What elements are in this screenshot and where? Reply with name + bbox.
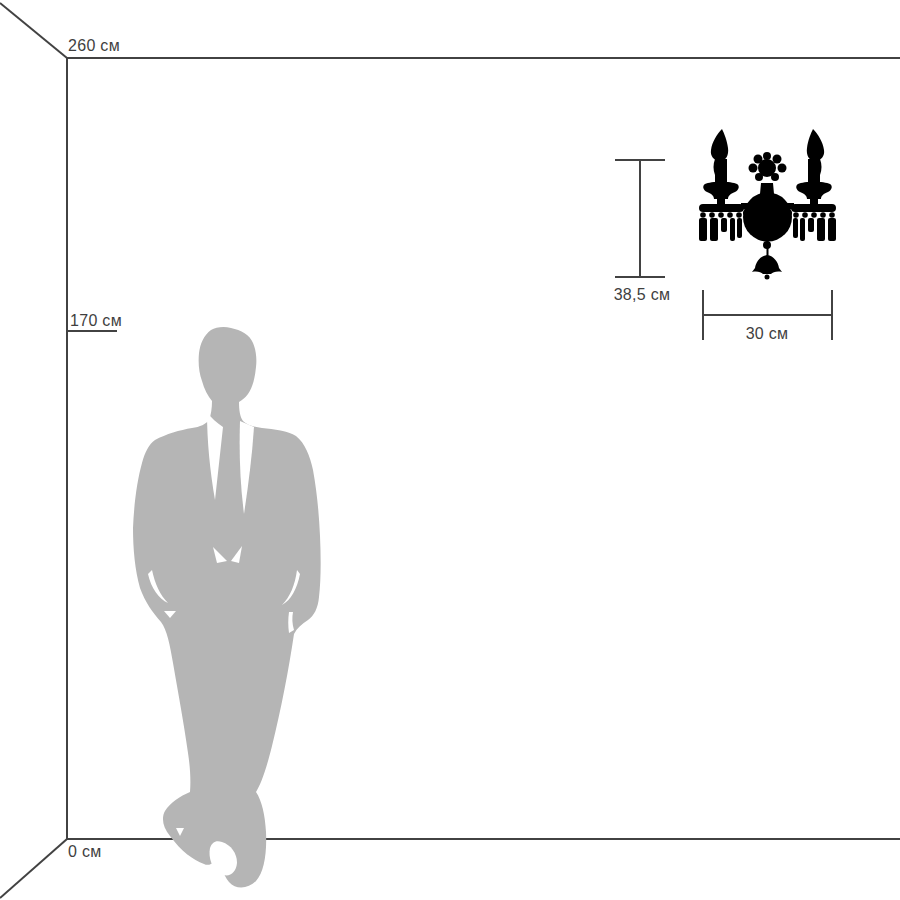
height-dimension	[615, 160, 665, 277]
floor-label: 0 см	[68, 843, 102, 861]
sconce-candle-arm-right	[786, 129, 836, 241]
candle-flame-icon	[711, 129, 728, 161]
crystal-prism	[737, 218, 742, 238]
height-dimension-lines	[615, 160, 665, 277]
person-silhouette	[133, 327, 321, 888]
pendant-bell	[752, 255, 782, 274]
crystal-bead	[709, 212, 715, 218]
person-body	[133, 327, 321, 888]
rosette-bead	[778, 164, 787, 173]
ceiling-corner-diagonal	[0, 3, 67, 58]
person-height-label: 170 см	[70, 312, 122, 330]
sconce-candle-arm-left	[699, 129, 749, 241]
rosette-bead	[771, 173, 779, 181]
crystal-bead	[727, 212, 733, 218]
crystal-bead	[736, 212, 742, 218]
candle-body	[714, 159, 728, 183]
rosette-bead	[749, 164, 758, 173]
crystal-prism	[699, 218, 707, 241]
bell-clapper	[765, 275, 770, 280]
diagram-canvas	[0, 0, 900, 900]
crystal-prism	[710, 218, 718, 241]
crystal-bead	[718, 212, 724, 218]
scale-diagram: 260 см 170 см 0 см 38,5 см 30 см	[0, 0, 900, 900]
rosette-bead	[773, 155, 782, 164]
crystal-bead	[700, 212, 706, 218]
ceiling-height-label: 260 см	[68, 37, 120, 55]
sconce-backplate-disc	[743, 193, 792, 242]
sconce-center	[743, 152, 792, 280]
crystal-prism	[730, 218, 735, 241]
sconce-neck	[760, 183, 774, 194]
pendant-bead	[763, 241, 771, 249]
crystal-arm-bar	[699, 204, 744, 212]
floor-corner-diagonal	[0, 839, 67, 898]
rosette-bead	[763, 152, 771, 160]
sconce-silhouette	[699, 129, 836, 280]
product-width-label: 30 см	[717, 325, 817, 343]
crystal-prism	[721, 218, 727, 232]
candle-bobeche	[703, 182, 738, 199]
rosette-bead	[755, 173, 763, 181]
product-height-label: 38,5 см	[592, 286, 692, 304]
room-outline	[0, 3, 900, 898]
